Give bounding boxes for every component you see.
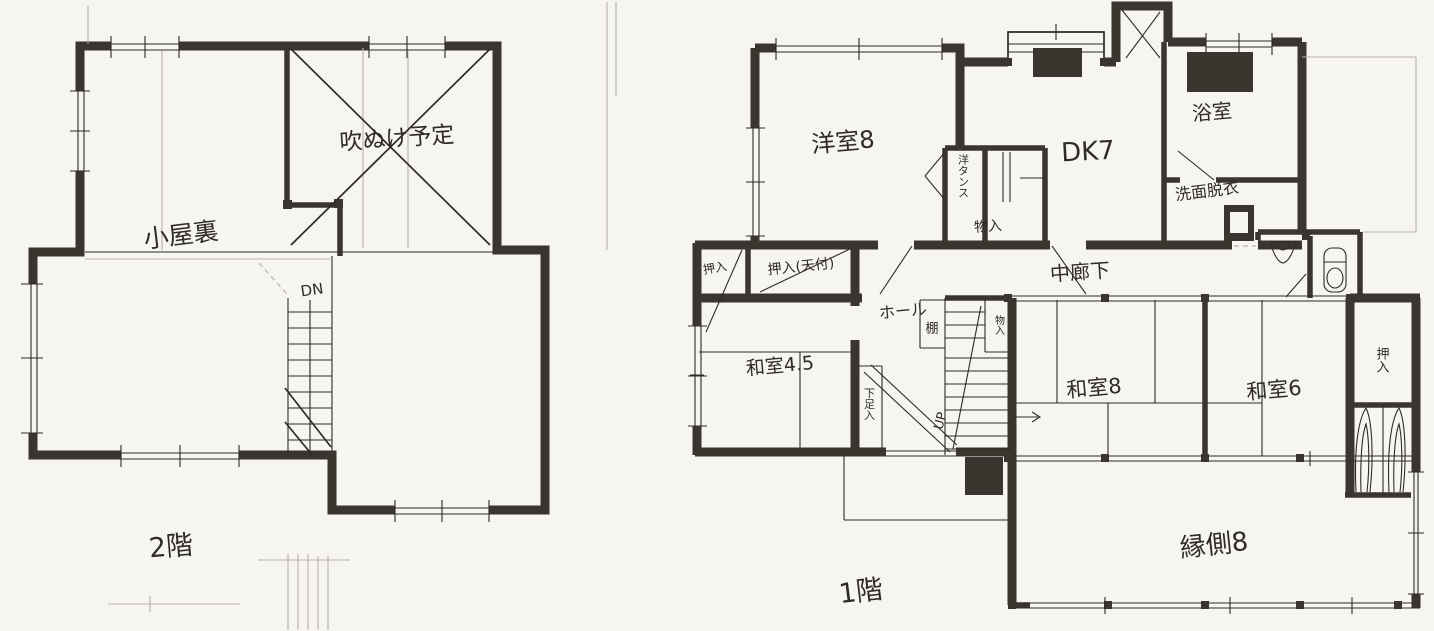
- room-label-veranda: 縁側8: [1178, 527, 1249, 564]
- door-opening: [1232, 240, 1258, 252]
- module-ticks: [690, 375, 1352, 614]
- closet-label-shelf: 棚: [925, 322, 938, 337]
- window: [1408, 472, 1424, 594]
- room-label-void: 吹ぬけ予定: [339, 122, 456, 156]
- construction-marks: [108, 554, 350, 630]
- washing-machine: [1224, 205, 1254, 241]
- floor-plan-1f: 洋室8 洋タンス 物入 DK7 浴室 洗面脱衣 中廊下 押入 押入(天付) ホー…: [688, 6, 1424, 614]
- closet-label-storage-north: 物入: [973, 218, 1002, 236]
- window: [1206, 33, 1272, 55]
- door-opening: [850, 306, 862, 340]
- room-label-western-room: 洋室8: [810, 125, 875, 158]
- porch-post: [965, 457, 1003, 495]
- window: [746, 128, 765, 236]
- closet-label-wardrobe: 洋タンス: [957, 153, 970, 198]
- floor-title-1f: 1階: [837, 574, 885, 610]
- closet-label-ceiling: 押入(天付): [767, 256, 835, 279]
- closet-label-stair-storage: 物入: [993, 314, 1005, 335]
- window: [395, 500, 489, 522]
- window: [21, 284, 43, 433]
- window: [688, 326, 707, 426]
- floor-plan-sheet: 小屋裏 吹ぬけ予定 DN 2階: [0, 0, 1434, 631]
- closet-label-shoe: 下足入: [863, 388, 876, 421]
- floor-title-2f: 2階: [148, 530, 195, 565]
- room-label-attic: 小屋裏: [142, 216, 220, 254]
- window: [70, 91, 90, 171]
- stairs-down-label: DN: [299, 280, 324, 301]
- kitchen-counter: [1033, 48, 1082, 77]
- stairs-up-label: UP: [932, 411, 951, 432]
- window: [121, 445, 239, 467]
- closet-label-east: 押入: [1374, 347, 1390, 373]
- toilet: [1286, 248, 1346, 297]
- room-label-corridor: 中廊下: [1049, 258, 1111, 286]
- sheet-fold-line: [607, 2, 616, 250]
- window: [111, 36, 179, 58]
- eave-line: [1302, 57, 1416, 232]
- closet-label-corner: 押入: [702, 259, 728, 277]
- room-label-tatami45: 和室4.5: [745, 352, 815, 380]
- room-label-dk: DK7: [1060, 136, 1115, 169]
- door-opening: [878, 239, 914, 294]
- room-label-tatami8: 和室8: [1065, 374, 1122, 403]
- back-door-swing: [1122, 10, 1160, 58]
- floor-plan-2f: 小屋裏 吹ぬけ予定 DN 2階: [21, 6, 545, 630]
- tatami-lines: [699, 300, 1262, 456]
- room-label-bathroom: 浴室: [1191, 98, 1233, 125]
- window: [369, 36, 445, 58]
- window: [776, 38, 942, 60]
- post: [283, 200, 292, 209]
- sliding-partition: [1012, 296, 1420, 608]
- bathtub: [1187, 52, 1253, 92]
- tokonoma-wood-grain: [1355, 405, 1405, 495]
- floor-plan-drawing: 小屋裏 吹ぬけ予定 DN 2階: [0, 0, 1434, 631]
- room-label-tatami6: 和室6: [1245, 376, 1302, 405]
